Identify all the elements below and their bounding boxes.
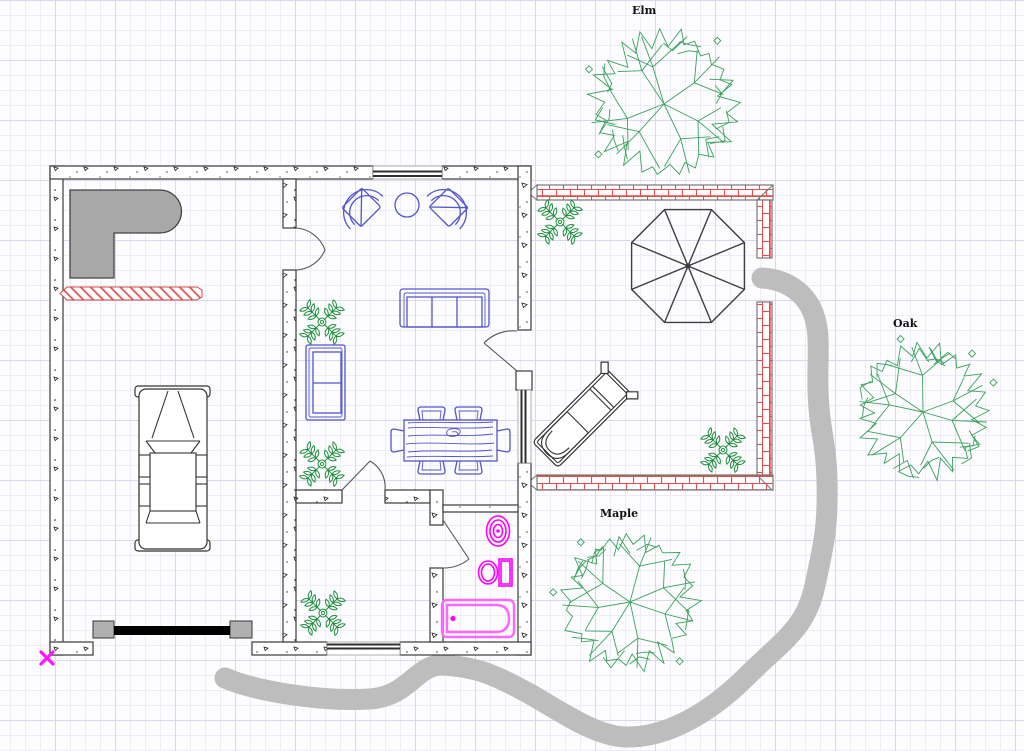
- tree-label-maple: Maple: [600, 507, 638, 520]
- plant-4[interactable]: [537, 199, 583, 245]
- floorplan-drawing: Elm Oak Maple: [0, 0, 1024, 751]
- armchair-right[interactable]: [423, 180, 476, 233]
- plant-3[interactable]: [300, 590, 346, 636]
- bathroom-door[interactable]: [443, 520, 469, 568]
- car[interactable]: [135, 386, 210, 551]
- plant-5[interactable]: [700, 427, 746, 473]
- sliding-door-bottom[interactable]: [327, 642, 400, 655]
- plant-1[interactable]: [299, 299, 345, 345]
- armchair-left[interactable]: [334, 180, 387, 233]
- garage-door[interactable]: [93, 621, 252, 638]
- window-top[interactable]: [373, 166, 442, 179]
- tree-oak[interactable]: [860, 336, 997, 481]
- workbench[interactable]: [60, 287, 202, 300]
- tree-elm[interactable]: [586, 29, 741, 175]
- sofa[interactable]: [400, 289, 489, 327]
- side-table[interactable]: [395, 193, 419, 217]
- garage-counter[interactable]: [70, 190, 182, 278]
- tree-maple[interactable]: [550, 534, 702, 672]
- toilet[interactable]: [479, 559, 513, 586]
- interior-double-door[interactable]: [296, 228, 325, 270]
- sun-lounger[interactable]: [527, 359, 642, 474]
- origin-marker-x[interactable]: [41, 652, 53, 664]
- hall-door[interactable]: [342, 461, 385, 490]
- patio-table[interactable]: [632, 210, 745, 323]
- bathroom-sink[interactable]: [487, 516, 510, 546]
- tree-label-elm: Elm: [632, 4, 657, 17]
- table-wood-grain: [406, 422, 494, 457]
- plant-2[interactable]: [299, 441, 345, 487]
- loveseat[interactable]: [306, 345, 345, 420]
- patio-french-door[interactable]: [484, 331, 517, 371]
- bathtub[interactable]: [442, 600, 514, 637]
- interior-walls[interactable]: [283, 179, 518, 642]
- dining-set[interactable]: [391, 407, 510, 474]
- window-right[interactable]: [518, 390, 531, 463]
- tree-label-oak: Oak: [893, 317, 918, 330]
- wall-post: [516, 371, 532, 390]
